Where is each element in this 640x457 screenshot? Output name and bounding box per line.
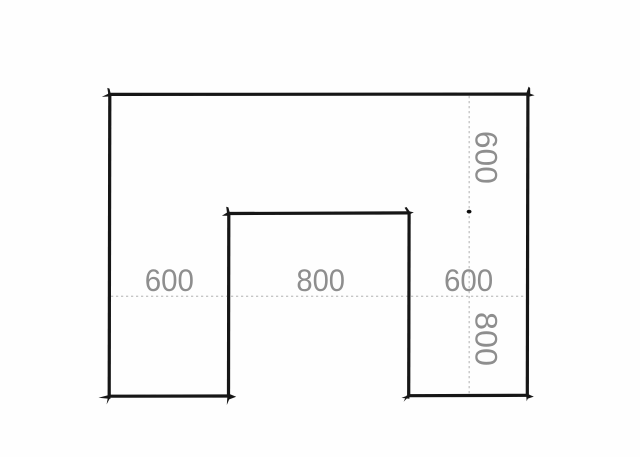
svg-text:800: 800 [296, 262, 345, 298]
svg-text:600: 600 [145, 262, 194, 298]
svg-text:600: 600 [468, 131, 504, 184]
svg-text:800: 800 [468, 312, 504, 366]
svg-text:600: 600 [444, 262, 493, 298]
